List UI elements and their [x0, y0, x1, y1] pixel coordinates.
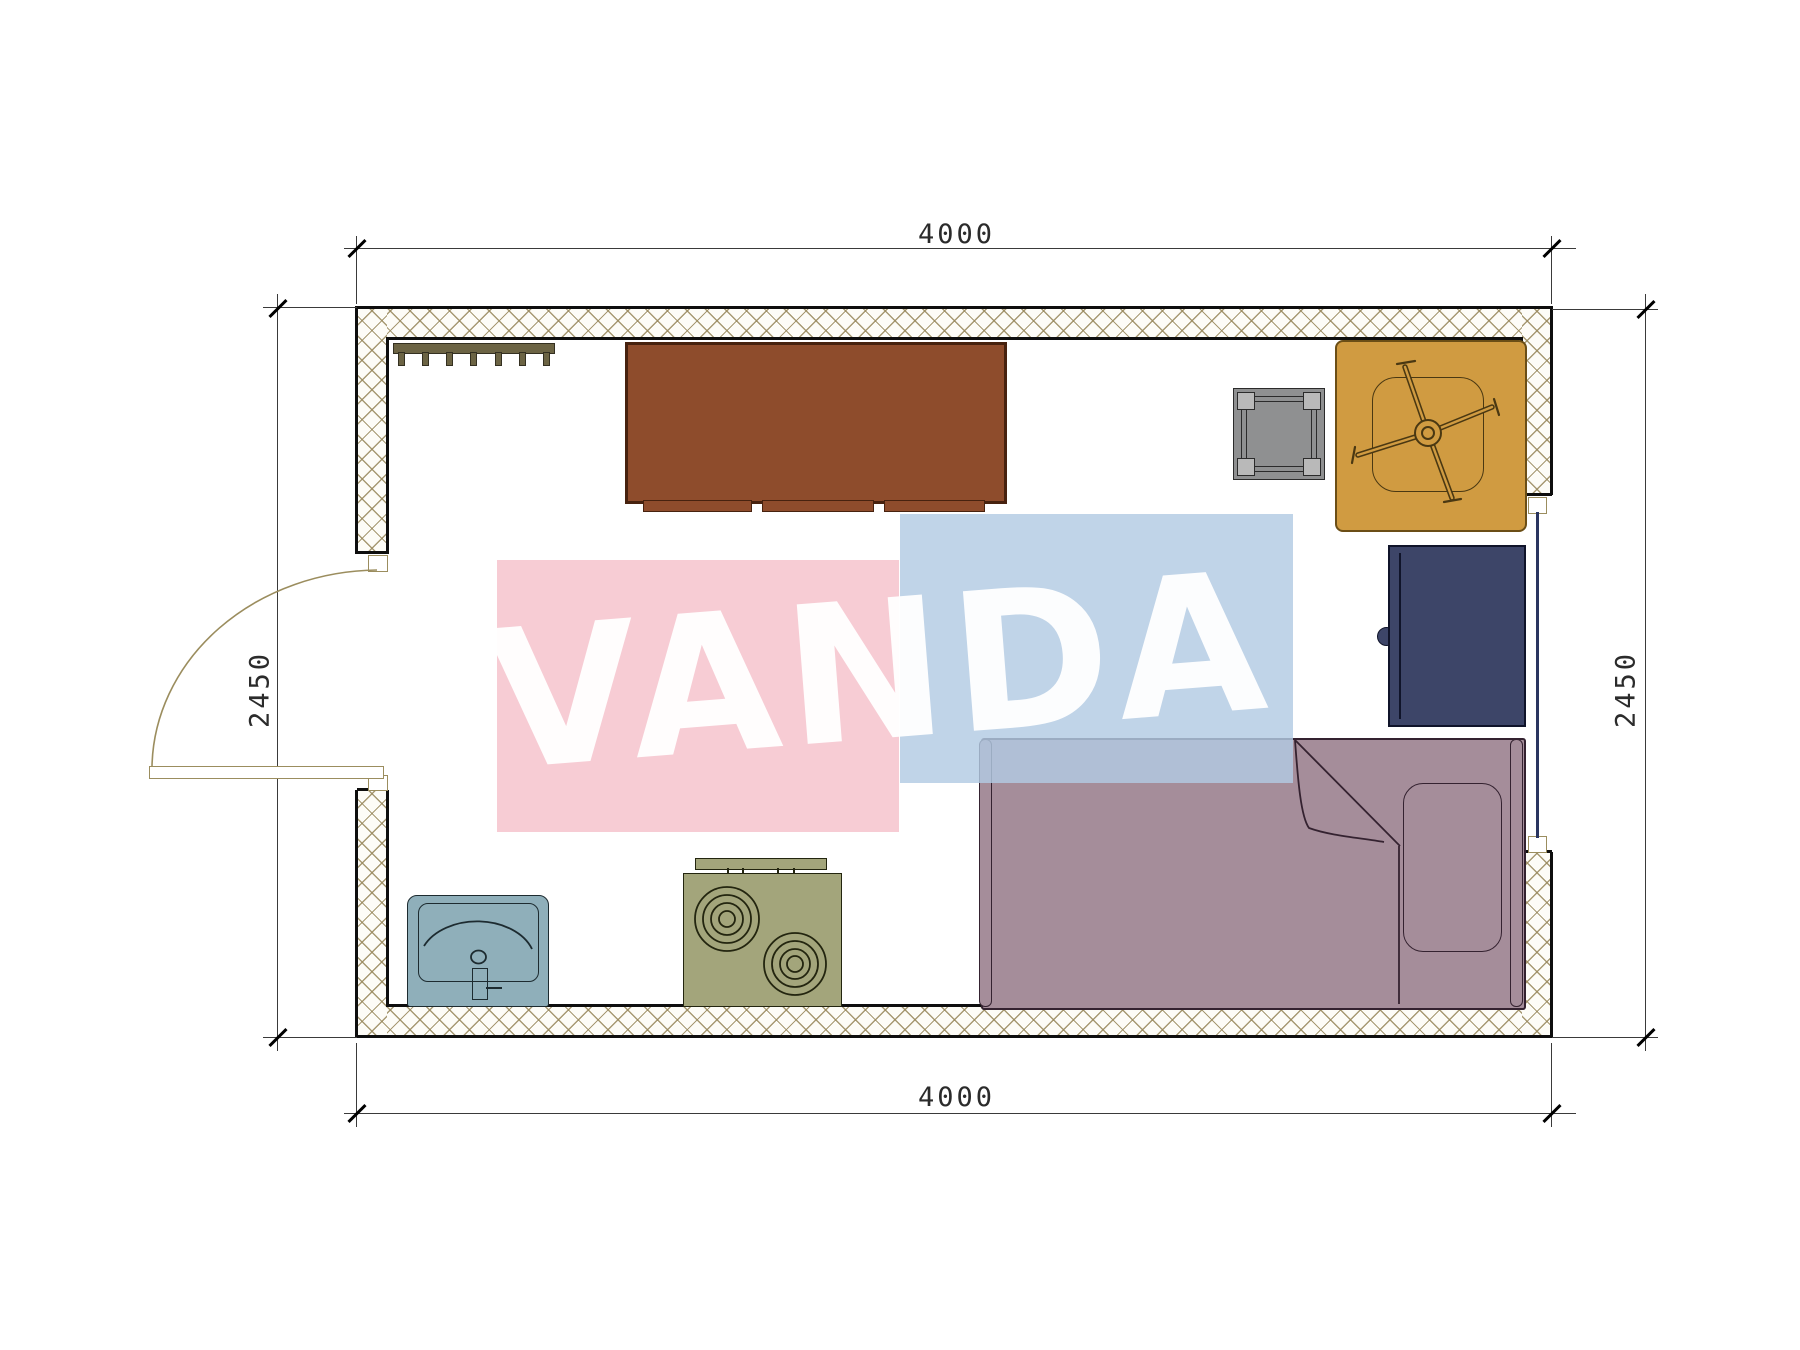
side-table-leg [1303, 458, 1321, 476]
door-jamb [368, 555, 388, 572]
wall-outline [1550, 306, 1553, 495]
cabinet-drawer [762, 500, 874, 512]
window-jamb [1528, 836, 1547, 853]
bed-pillow [1403, 783, 1502, 952]
wall-left-upper [357, 308, 387, 554]
cabinet-drawer [643, 500, 752, 512]
dim-label-bottom: 4000 [918, 1082, 995, 1113]
cabinet-drawer [884, 500, 985, 512]
door-leaf [149, 766, 384, 779]
dim-label-right: 2450 [1611, 648, 1642, 732]
side-table [1233, 388, 1325, 480]
wall-top [357, 308, 1552, 338]
wall-right-lower [1522, 852, 1552, 1037]
wall-inner-line [386, 337, 389, 554]
dim-tick [268, 299, 287, 318]
wall-outline [357, 1035, 1552, 1038]
wardrobe-door-line [1399, 553, 1401, 719]
side-table-leg [1303, 392, 1321, 410]
side-table-leg [1237, 458, 1255, 476]
dim-line-bottom [344, 1113, 1576, 1114]
coat-rack-hook [495, 352, 502, 366]
sink-faucet-pipe [486, 987, 502, 989]
dim-line-left [277, 294, 278, 1051]
side-table-leg [1237, 392, 1255, 410]
sink-faucet [472, 968, 488, 1000]
coat-rack-hook [398, 352, 405, 366]
coat-rack-hook [446, 352, 453, 366]
cabinet [625, 342, 1007, 504]
wardrobe [1388, 545, 1526, 727]
coat-rack-hook [422, 352, 429, 366]
stove-backsplash [695, 858, 827, 870]
bed-edge-roll [1510, 739, 1523, 1007]
wall-outline [357, 306, 1552, 309]
dim-line-right [1645, 294, 1646, 1051]
dim-label-left: 2450 [245, 648, 276, 732]
dim-label-top: 4000 [918, 219, 995, 250]
floor-plan-canvas: 4000 4000 2450 2450 [0, 0, 1800, 1350]
wall-outline [355, 306, 358, 554]
armchair-seat-outline [1372, 377, 1484, 492]
wall-inner-line [386, 790, 389, 1007]
wall-outline [1550, 852, 1553, 1038]
wall-left-lower [357, 790, 387, 1037]
window-glass-line [1536, 512, 1539, 838]
coat-rack-hook [543, 352, 550, 366]
stove [683, 873, 842, 1007]
coat-rack-hook [519, 352, 526, 366]
coat-rack-hook [470, 352, 477, 366]
door-opening-cap [357, 551, 387, 554]
wall-outline [355, 790, 358, 1038]
wall-bottom [357, 1007, 1552, 1037]
